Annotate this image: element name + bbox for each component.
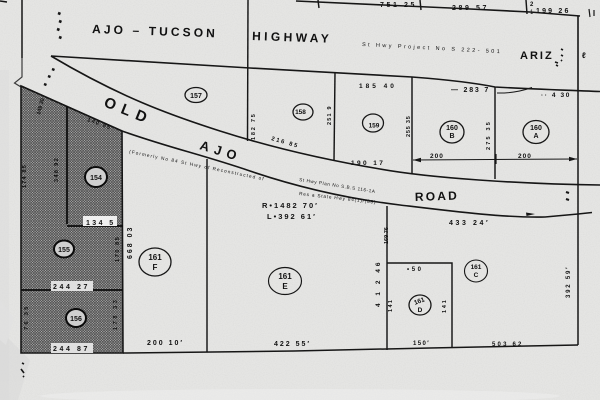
svg-text:199 26: 199 26: [536, 8, 571, 15]
svg-text:182 75: 182 75: [251, 112, 257, 140]
svg-text:156: 156: [70, 316, 82, 323]
svg-text:244 87: 244 87: [53, 346, 90, 353]
svg-text:141: 141: [442, 298, 448, 313]
svg-text:C: C: [474, 272, 479, 279]
svg-text:275 35: 275 35: [486, 120, 492, 150]
svg-text:160: 160: [530, 125, 542, 132]
svg-text:E: E: [282, 282, 288, 291]
svg-text:154: 154: [90, 175, 102, 182]
svg-text:134 5: 134 5: [86, 220, 116, 227]
svg-text:161: 161: [148, 253, 162, 262]
svg-text:F: F: [153, 263, 158, 272]
svg-text:R•1482 70′: R•1482 70′: [262, 201, 319, 210]
svg-text:157: 157: [190, 93, 202, 100]
svg-text:160: 160: [446, 125, 458, 132]
svg-text:D: D: [418, 307, 423, 314]
svg-text:155: 155: [58, 247, 70, 254]
svg-text:L•392 61′: L•392 61′: [267, 212, 317, 221]
svg-text:251 9: 251 9: [327, 105, 333, 125]
svg-text:190 17: 190 17: [351, 160, 385, 167]
svg-text:255 35: 255 35: [406, 115, 412, 137]
svg-text:422 55′: 422 55′: [274, 341, 311, 348]
svg-text:200 10′: 200 10′: [147, 340, 184, 347]
svg-text:200: 200: [430, 153, 444, 160]
svg-text:HIGHWAY: HIGHWAY: [252, 29, 332, 46]
svg-text:159: 159: [369, 123, 380, 130]
svg-text:150′: 150′: [413, 341, 430, 347]
svg-text:200: 200: [518, 153, 532, 160]
svg-text:668 03: 668 03: [127, 226, 134, 259]
svg-text:— 283 7: — 283 7: [451, 87, 490, 94]
svg-text:•50: •50: [407, 267, 424, 273]
svg-text:289 57: 289 57: [452, 5, 489, 12]
svg-text:ℓ: ℓ: [582, 51, 586, 60]
svg-text:141: 141: [388, 299, 394, 312]
svg-text:433 24′: 433 24′: [449, 220, 490, 227]
svg-text:161: 161: [471, 264, 482, 271]
svg-text:392 59′: 392 59′: [566, 266, 572, 298]
svg-text:·· 4 30: ·· 4 30: [541, 92, 571, 99]
svg-text:169 76: 169 76: [384, 227, 390, 244]
svg-text:751 25: 751 25: [380, 2, 417, 9]
svg-text:185 40: 185 40: [359, 83, 397, 90]
svg-text:170 85: 170 85: [115, 236, 121, 262]
svg-text:B: B: [449, 133, 454, 140]
svg-text:76 35: 76 35: [24, 304, 30, 330]
svg-text:158: 158: [295, 109, 306, 116]
svg-text:ROAD: ROAD: [415, 188, 460, 204]
svg-text:161: 161: [278, 272, 292, 281]
svg-text:348 92: 348 92: [54, 157, 60, 182]
svg-text:ARIZ: ARIZ: [520, 50, 554, 62]
svg-text:4 1 2 46: 4 1 2 46: [375, 260, 382, 308]
svg-text:174 85: 174 85: [22, 164, 28, 188]
svg-text:178 33: 178 33: [113, 298, 119, 330]
svg-text:244 27: 244 27: [53, 284, 90, 291]
svg-text:A: A: [533, 133, 538, 140]
